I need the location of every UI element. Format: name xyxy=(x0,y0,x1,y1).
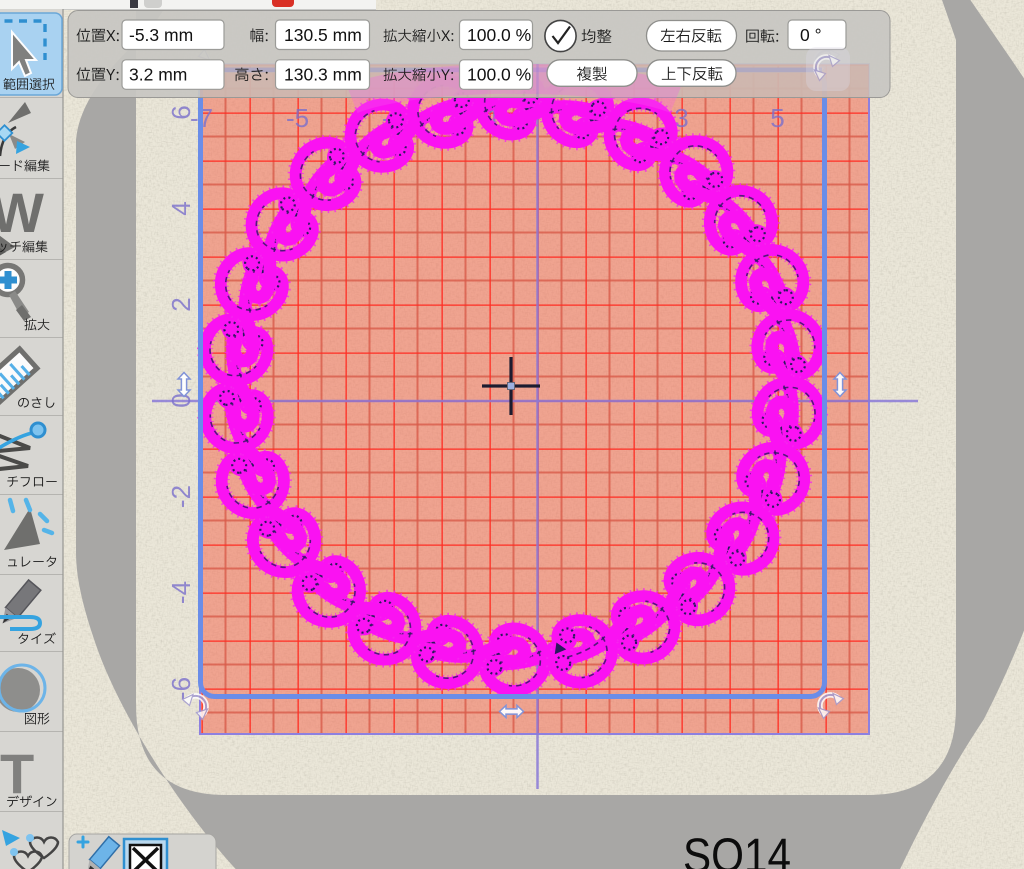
svg-text:SQ14: SQ14 xyxy=(683,830,791,869)
svg-text:130.3 mm: 130.3 mm xyxy=(284,65,362,85)
svg-text:130.5 mm: 130.5 mm xyxy=(284,25,362,45)
svg-text:100.0 %: 100.0 % xyxy=(467,65,531,85)
svg-text:0 °: 0 ° xyxy=(800,25,822,45)
svg-text:100.0 %: 100.0 % xyxy=(467,25,531,45)
